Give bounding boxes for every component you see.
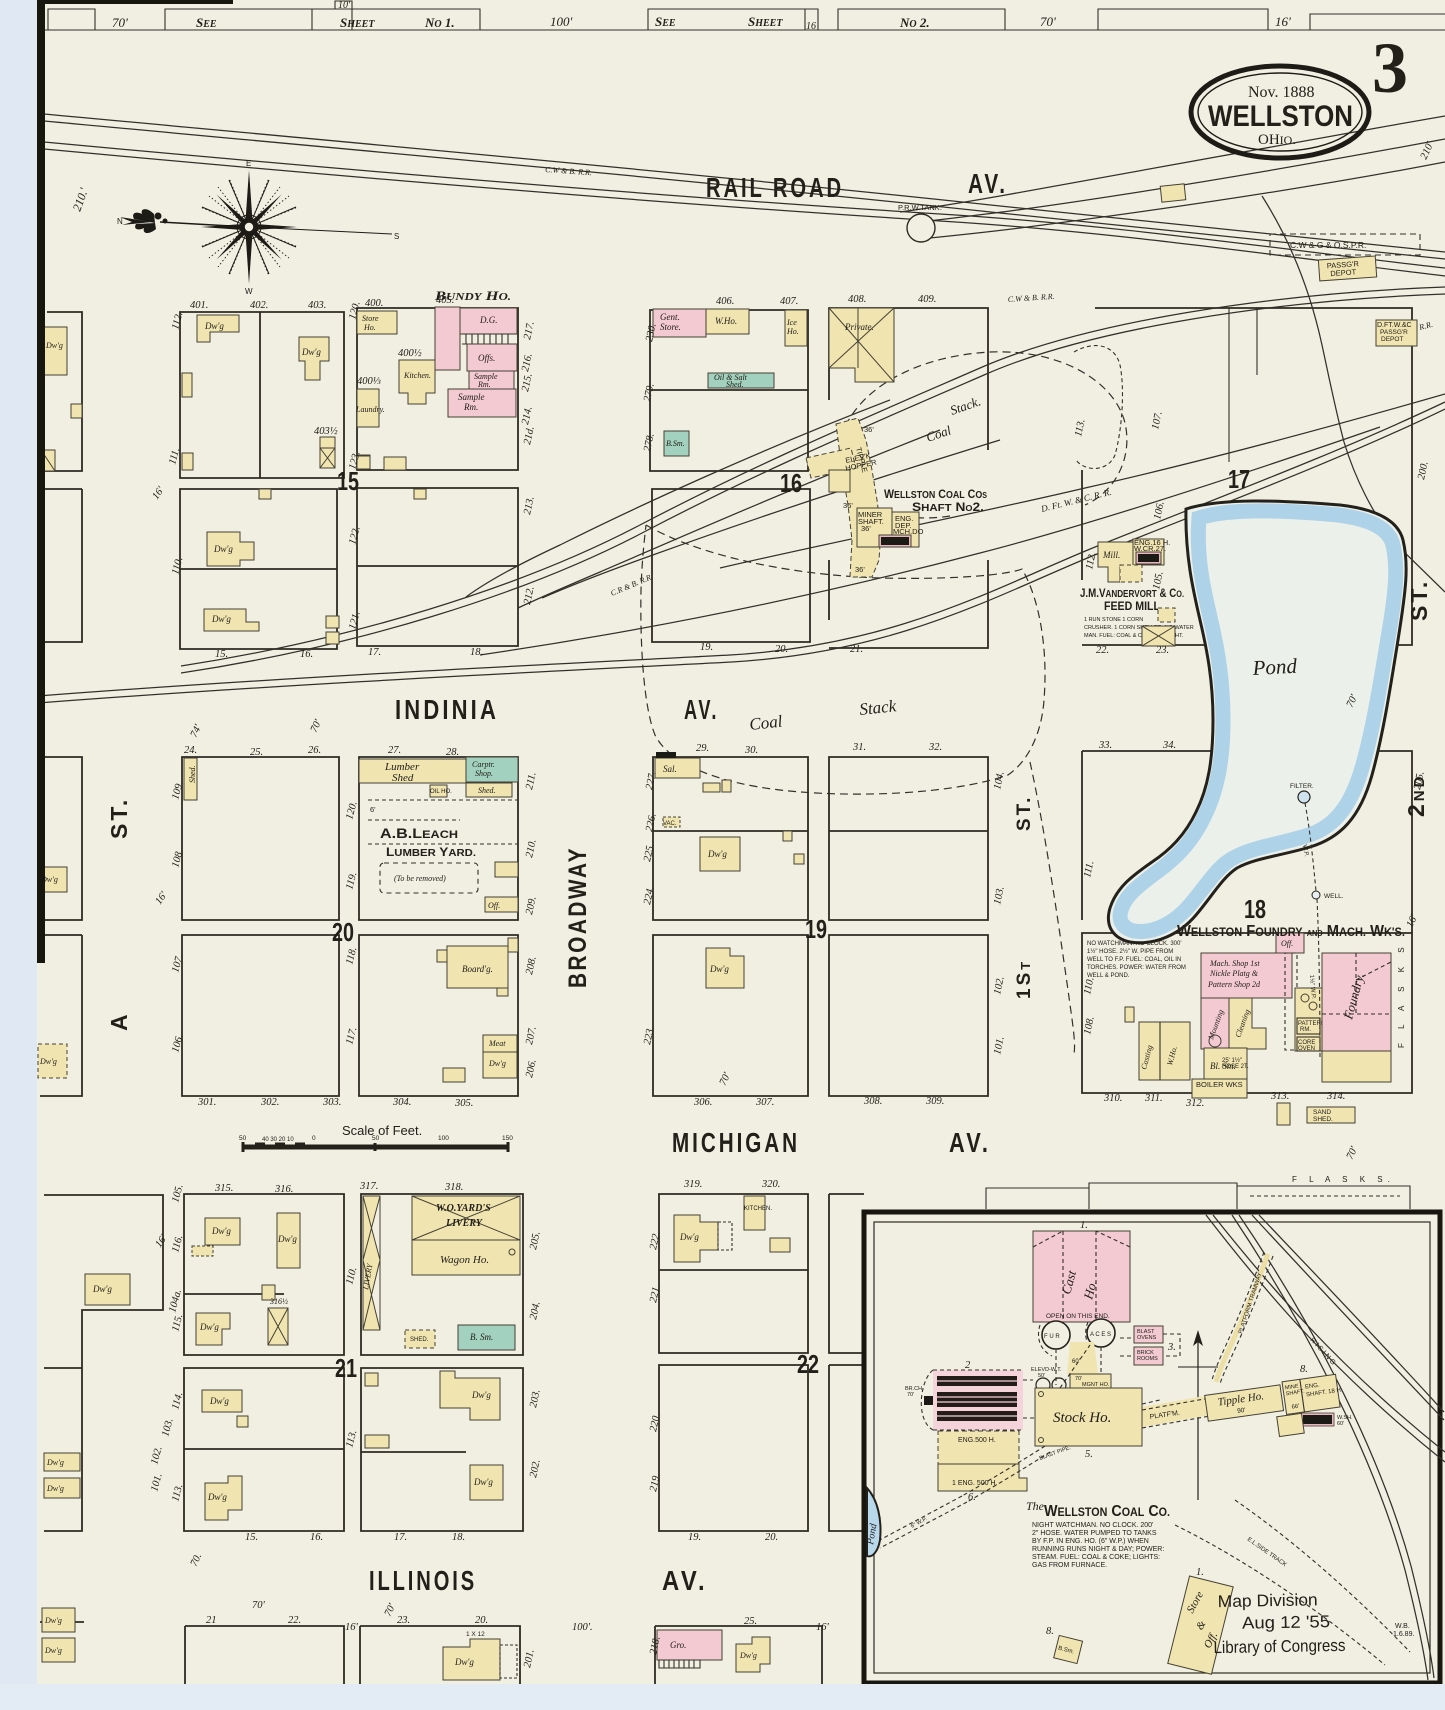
- svg-text:KITCHEN.: KITCHEN.: [744, 1206, 772, 1212]
- svg-text:LIVERY: LIVERY: [445, 1218, 483, 1229]
- svg-text:23.: 23.: [397, 1615, 410, 1626]
- svg-text:OVENS: OVENS: [1137, 1335, 1157, 1341]
- svg-text:36': 36': [864, 425, 874, 434]
- svg-text:16: 16: [806, 21, 816, 32]
- svg-text:36': 36': [855, 565, 865, 574]
- svg-text:70': 70': [112, 15, 128, 30]
- svg-text:308.: 308.: [863, 1096, 882, 1107]
- svg-text:AV.: AV.: [684, 694, 719, 725]
- svg-text:FEED MILL: FEED MILL: [1104, 599, 1160, 613]
- svg-text:17.: 17.: [394, 1532, 407, 1543]
- svg-text:25.: 25.: [744, 1616, 757, 1627]
- svg-text:33.: 33.: [1098, 740, 1112, 751]
- svg-text:D.G.: D.G.: [479, 315, 498, 325]
- svg-text:402.: 402.: [250, 300, 268, 311]
- svg-text:31.: 31.: [852, 742, 866, 753]
- svg-text:36': 36': [861, 524, 871, 533]
- svg-text:1ST: 1ST: [1014, 959, 1035, 999]
- svg-text:SHAFT NO2.: SHAFT NO2.: [912, 500, 984, 514]
- svg-text:1.: 1.: [1196, 1567, 1204, 1578]
- svg-text:60': 60': [1337, 1421, 1344, 1427]
- svg-text:(To be removed): (To be removed): [394, 874, 446, 883]
- svg-text:70': 70': [1040, 14, 1056, 29]
- svg-text:302.: 302.: [260, 1097, 279, 1108]
- svg-text:Dw'g: Dw'g: [199, 1322, 219, 1332]
- svg-text:16': 16': [816, 1622, 830, 1633]
- svg-text:16': 16': [1275, 14, 1291, 29]
- svg-text:Laundry.: Laundry.: [355, 405, 385, 414]
- svg-text:Shed: Shed: [392, 772, 414, 784]
- svg-text:Dw'g: Dw'g: [44, 1616, 62, 1625]
- svg-text:W.B.: W.B.: [1395, 1623, 1410, 1630]
- svg-text:N: N: [117, 217, 123, 226]
- svg-text:BY F.P. IN ENG. HO. (6" W.P.): BY F.P. IN ENG. HO. (6" W.P.) WHEN: [1032, 1538, 1149, 1545]
- svg-text:409.: 409.: [918, 294, 936, 305]
- svg-text:0: 0: [312, 1135, 316, 1142]
- svg-text:INDINIA: INDINIA: [395, 694, 499, 725]
- svg-text:Ho.: Ho.: [786, 327, 799, 336]
- svg-text:ST.: ST.: [1406, 579, 1432, 621]
- svg-text:HOSE 2T.: HOSE 2T.: [1222, 1064, 1249, 1070]
- svg-text:20.: 20.: [775, 644, 788, 655]
- svg-text:8.: 8.: [1046, 1626, 1054, 1637]
- svg-text:70': 70': [907, 1392, 914, 1398]
- svg-text:Aug 12 '55: Aug 12 '55: [1242, 1612, 1330, 1633]
- svg-text:314.: 314.: [1326, 1091, 1345, 1102]
- svg-text:22.: 22.: [1096, 645, 1109, 656]
- svg-text:W.CR.27.: W.CR.27.: [1134, 544, 1166, 553]
- svg-text:66': 66': [1291, 1404, 1300, 1411]
- svg-text:303.: 303.: [322, 1097, 341, 1108]
- svg-text:306.: 306.: [693, 1097, 712, 1108]
- svg-text:P.R.W.TANK.: P.R.W.TANK.: [898, 203, 942, 212]
- svg-text:28.: 28.: [446, 747, 459, 758]
- svg-text:40 30 20 10: 40 30 20 10: [262, 1137, 294, 1143]
- svg-text:Dw'g: Dw'g: [211, 1226, 231, 1236]
- svg-text:B.Sm.: B.Sm.: [666, 439, 685, 448]
- svg-text:Stock Ho.: Stock Ho.: [1053, 1410, 1111, 1426]
- svg-text:Store.: Store.: [660, 322, 681, 332]
- svg-text:ELEVD-W.T.: ELEVD-W.T.: [1031, 1367, 1062, 1373]
- svg-text:34.: 34.: [1162, 740, 1176, 751]
- svg-text:3.: 3.: [1167, 1342, 1176, 1353]
- svg-text:400⅓: 400⅓: [357, 376, 381, 387]
- svg-text:WELLSTON FOUNDRY AND MACH. WK': WELLSTON FOUNDRY AND MACH. WK'S.: [1177, 923, 1405, 940]
- svg-text:16': 16': [345, 1622, 359, 1633]
- svg-text:3: 3: [1372, 28, 1408, 108]
- svg-text:SAND: SAND: [1313, 1109, 1331, 1116]
- svg-text:Shed.: Shed.: [726, 380, 744, 389]
- svg-text:315.: 315.: [214, 1183, 233, 1194]
- svg-text:19: 19: [805, 914, 827, 944]
- svg-text:WELLSTON COAL COS: WELLSTON COAL COS: [884, 487, 988, 501]
- svg-text:316.: 316.: [274, 1184, 293, 1195]
- svg-text:Gent.: Gent.: [660, 312, 680, 322]
- svg-text:SHED.: SHED.: [410, 1337, 429, 1343]
- svg-text:Dw'g: Dw'g: [739, 1651, 757, 1660]
- svg-text:ENG.500 H.: ENG.500 H.: [958, 1437, 996, 1444]
- svg-text:MICHIGAN: MICHIGAN: [672, 1127, 800, 1158]
- svg-text:E: E: [246, 159, 251, 168]
- svg-text:SHED.: SHED.: [1313, 1116, 1333, 1123]
- svg-text:Store: Store: [362, 314, 379, 323]
- svg-text:90': 90': [1237, 1407, 1246, 1415]
- svg-text:310.: 310.: [1103, 1093, 1122, 1104]
- svg-text:MCH.DO: MCH.DO: [893, 527, 924, 536]
- svg-text:Dw'g: Dw'g: [471, 1390, 491, 1400]
- svg-text:Coal: Coal: [748, 712, 783, 734]
- svg-text:W.O.YARD'S: W.O.YARD'S: [436, 1203, 491, 1214]
- svg-text:AV.: AV.: [662, 1565, 708, 1596]
- svg-text:313.: 313.: [1270, 1091, 1289, 1102]
- svg-text:6': 6': [370, 805, 376, 814]
- svg-text:15.: 15.: [245, 1532, 258, 1543]
- svg-text:Dw'g: Dw'g: [488, 1059, 506, 1068]
- svg-text:22.: 22.: [288, 1615, 301, 1626]
- svg-text:Shed.: Shed.: [478, 786, 496, 795]
- svg-text:F U R: F U R: [1044, 1334, 1060, 1340]
- svg-text:401.: 401.: [190, 300, 208, 311]
- svg-text:21: 21: [335, 1353, 357, 1383]
- svg-text:Mach. Shop 1st: Mach. Shop 1st: [1209, 959, 1260, 968]
- svg-text:Ho.: Ho.: [363, 323, 376, 332]
- svg-text:403½: 403½: [314, 426, 338, 437]
- svg-text:Dw'g: Dw'g: [454, 1657, 474, 1667]
- svg-text:Dw'g: Dw'g: [92, 1284, 112, 1294]
- svg-text:W: W: [245, 287, 253, 296]
- svg-text:405.: 405.: [436, 295, 454, 306]
- svg-text:Sample: Sample: [458, 392, 485, 402]
- svg-text:Off.: Off.: [488, 901, 500, 910]
- svg-text:21.: 21.: [850, 644, 863, 655]
- svg-text:307.: 307.: [755, 1097, 774, 1108]
- svg-text:50: 50: [372, 1135, 380, 1142]
- svg-text:1 X 12: 1 X 12: [466, 1631, 485, 1638]
- svg-text:OHIO.: OHIO.: [1258, 132, 1296, 148]
- svg-text:22: 22: [797, 1349, 819, 1379]
- svg-text:Gro.: Gro.: [670, 1640, 686, 1650]
- svg-text:Sal.: Sal.: [663, 764, 677, 774]
- svg-text:1½" HOSE. 2½" W. PIPE FROM: 1½" HOSE. 2½" W. PIPE FROM: [1087, 948, 1173, 955]
- svg-text:Scale of Feet.: Scale of Feet.: [342, 1123, 422, 1138]
- svg-text:60': 60': [1072, 1359, 1080, 1365]
- svg-text:Dw'g: Dw'g: [39, 1057, 57, 1066]
- svg-text:25.: 25.: [250, 747, 263, 758]
- svg-text:AV.: AV.: [949, 1127, 991, 1158]
- svg-text:10': 10': [338, 0, 351, 11]
- svg-text:25' 1½": 25' 1½": [1222, 1057, 1242, 1064]
- svg-text:Ice: Ice: [786, 318, 797, 327]
- svg-text:C.W & G & O.S.P.R.: C.W & G & O.S.P.R.: [1290, 240, 1366, 250]
- svg-text:B. Sm.: B. Sm.: [470, 1332, 493, 1342]
- svg-text:Mill.: Mill.: [1102, 550, 1120, 560]
- svg-text:Kitchen.: Kitchen.: [403, 371, 431, 380]
- svg-text:MGNT HO.: MGNT HO.: [1082, 1382, 1110, 1388]
- svg-text:Dw'g: Dw'g: [44, 1646, 62, 1655]
- svg-text:S: S: [394, 232, 399, 241]
- svg-text:D.FT.W.&C: D.FT.W.&C: [1377, 322, 1412, 329]
- svg-text:Shed.: Shed.: [188, 765, 197, 783]
- svg-text:406.: 406.: [716, 296, 734, 307]
- svg-text:1 RUN STONE 1 CORN: 1 RUN STONE 1 CORN: [1084, 617, 1143, 623]
- svg-text:NIGHT WATCHMAN. NO CLOCK. 200': NIGHT WATCHMAN. NO CLOCK. 200': [1032, 1522, 1153, 1529]
- svg-text:400.: 400.: [365, 298, 383, 309]
- svg-text:Dw'g: Dw'g: [707, 849, 727, 859]
- svg-text:WELL.: WELL.: [1324, 893, 1344, 900]
- svg-text:Offs.: Offs.: [478, 353, 495, 363]
- svg-text:50: 50: [239, 1135, 247, 1142]
- svg-text:Nickle Platg &: Nickle Platg &: [1209, 969, 1259, 978]
- svg-text:319.: 319.: [683, 1179, 702, 1190]
- svg-text:1.: 1.: [1080, 1220, 1088, 1231]
- svg-text:Pattern Shop 2d: Pattern Shop 2d: [1207, 980, 1261, 989]
- svg-text:ROOMS: ROOMS: [1137, 1356, 1158, 1362]
- svg-text:408.: 408.: [848, 294, 866, 305]
- svg-text:Dw'g: Dw'g: [709, 964, 729, 974]
- svg-text:STEAM. FUEL: COAL & COKE; LIGH: STEAM. FUEL: COAL & COKE; LIGHTS:: [1032, 1554, 1160, 1561]
- svg-text:1 ENG. 500 H.: 1 ENG. 500 H.: [952, 1480, 998, 1487]
- svg-text:100': 100': [550, 14, 573, 29]
- svg-text:150: 150: [502, 1135, 513, 1142]
- svg-text:16: 16: [780, 468, 802, 498]
- svg-text:23.: 23.: [1156, 645, 1169, 656]
- svg-text:19.: 19.: [688, 1532, 701, 1543]
- svg-text:WELLSTON: WELLSTON: [1208, 100, 1353, 133]
- svg-text:Map Division: Map Division: [1218, 1590, 1318, 1611]
- svg-text:20.: 20.: [475, 1615, 488, 1626]
- svg-text:1.6.89.: 1.6.89.: [1393, 1631, 1414, 1638]
- svg-text:Shop.: Shop.: [475, 769, 493, 778]
- svg-text:403.: 403.: [308, 300, 326, 311]
- svg-text:FILTER.: FILTER.: [1290, 783, 1314, 790]
- svg-text:20: 20: [332, 917, 354, 947]
- svg-text:DEPOT: DEPOT: [1330, 267, 1357, 278]
- svg-text:W.Ho.: W.Ho.: [715, 316, 737, 326]
- svg-text:100: 100: [438, 1135, 449, 1142]
- svg-text:Private.: Private.: [844, 322, 874, 332]
- svg-text:Meat: Meat: [488, 1039, 506, 1048]
- svg-text:18.: 18.: [452, 1532, 465, 1543]
- svg-text:AV.: AV.: [968, 168, 1008, 199]
- svg-text:29.: 29.: [696, 743, 709, 754]
- svg-text:Rm.: Rm.: [463, 402, 478, 412]
- svg-text:Dw'g: Dw'g: [679, 1232, 699, 1242]
- svg-text:19.: 19.: [700, 642, 713, 653]
- svg-text:Dw'g: Dw'g: [46, 1484, 64, 1493]
- svg-text:18: 18: [1244, 894, 1266, 924]
- svg-text:ST.: ST.: [1014, 795, 1035, 831]
- svg-text:F L A S K S: F L A S K S: [1397, 941, 1406, 1048]
- svg-text:301.: 301.: [197, 1097, 216, 1108]
- svg-text:RUNNING RUNS NIGHT & DAY; POWE: RUNNING RUNS NIGHT & DAY; POWER:: [1032, 1546, 1164, 1553]
- svg-text:407.: 407.: [780, 296, 798, 307]
- svg-text:Dw'g: Dw'g: [211, 614, 231, 624]
- svg-text:Off.: Off.: [1281, 939, 1293, 948]
- svg-text:100'.: 100'.: [572, 1622, 593, 1633]
- svg-text:Library of Congress: Library of Congress: [1213, 1636, 1345, 1657]
- svg-text:TORCHES. POWER: WATER FROM: TORCHES. POWER: WATER FROM: [1087, 965, 1186, 971]
- svg-text:RAIL ROAD: RAIL ROAD: [706, 172, 844, 203]
- svg-text:2" HOSE. WATER PUMPED TO TANKS: 2" HOSE. WATER PUMPED TO TANKS: [1032, 1530, 1157, 1537]
- svg-text:BOILER WKS: BOILER WKS: [1196, 1080, 1243, 1089]
- svg-text:320.: 320.: [761, 1179, 780, 1190]
- svg-text:A C E S: A C E S: [1090, 1332, 1111, 1338]
- svg-text:DEPOT: DEPOT: [1381, 336, 1403, 343]
- svg-text:The: The: [1026, 1499, 1045, 1513]
- svg-text:Dw'g: Dw'g: [204, 321, 224, 331]
- svg-text:LUMBER YARD.: LUMBER YARD.: [386, 845, 476, 859]
- svg-text:15.: 15.: [215, 649, 228, 660]
- svg-text:400½: 400½: [398, 348, 422, 359]
- svg-text:30.: 30.: [744, 745, 758, 756]
- svg-text:Dw'g: Dw'g: [473, 1477, 493, 1487]
- svg-text:WELLSTON COAL CO.: WELLSTON COAL CO.: [1044, 1503, 1170, 1520]
- svg-text:309.: 309.: [925, 1096, 944, 1107]
- svg-text:J.M.VANDERVORT & CO.: J.M.VANDERVORT & CO.: [1080, 586, 1184, 600]
- svg-text:18.: 18.: [470, 647, 483, 658]
- svg-text:Pond: Pond: [1251, 654, 1298, 680]
- svg-text:Dw'g: Dw'g: [277, 1234, 297, 1244]
- svg-text:16.: 16.: [300, 649, 313, 660]
- svg-text:Board'g.: Board'g.: [462, 964, 493, 974]
- svg-text:RM.: RM.: [1300, 1027, 1311, 1033]
- svg-text:Dw'g: Dw'g: [45, 341, 63, 350]
- svg-text:305.: 305.: [454, 1098, 473, 1109]
- svg-text:26.: 26.: [308, 745, 321, 756]
- svg-text:VAC.: VAC.: [663, 821, 677, 827]
- svg-text:WELL TO F.P. FUEL: COAL, OIL I: WELL TO F.P. FUEL: COAL, OIL IN: [1087, 957, 1181, 963]
- svg-text:PASSG'R: PASSG'R: [1380, 329, 1408, 336]
- svg-text:5.: 5.: [1085, 1449, 1093, 1460]
- svg-text:BROADWAY: BROADWAY: [564, 846, 592, 988]
- svg-text:ST.: ST.: [106, 797, 132, 839]
- svg-text:Dw'g: Dw'g: [207, 1492, 227, 1502]
- svg-text:OIL HO.: OIL HO.: [430, 789, 452, 795]
- svg-text:317.: 317.: [359, 1181, 378, 1192]
- svg-text:Dw'g: Dw'g: [46, 1458, 64, 1467]
- svg-text:OVEN: OVEN: [1298, 1046, 1315, 1052]
- svg-text:Wagon Ho.: Wagon Ho.: [440, 1254, 489, 1266]
- svg-text:ILLINOIS: ILLINOIS: [369, 1565, 477, 1596]
- svg-text:70': 70': [252, 1600, 266, 1611]
- svg-text:318.: 318.: [444, 1182, 463, 1193]
- svg-text:311.: 311.: [1144, 1093, 1163, 1104]
- svg-text:Dw'g: Dw'g: [213, 544, 233, 554]
- svg-text:304.: 304.: [392, 1097, 411, 1108]
- svg-text:CRUSHER. 1 CORN SHELLER. NO WA: CRUSHER. 1 CORN SHELLER. NO WATER: [1084, 625, 1194, 631]
- svg-text:316½: 316½: [269, 1297, 288, 1306]
- svg-text:17: 17: [1228, 464, 1250, 494]
- svg-text:Carptr.: Carptr.: [472, 760, 495, 769]
- svg-text:36': 36': [843, 501, 853, 510]
- svg-text:8.: 8.: [1300, 1364, 1308, 1375]
- svg-text:20.: 20.: [765, 1532, 778, 1543]
- svg-text:24.: 24.: [184, 745, 197, 756]
- svg-text:Stack: Stack: [858, 696, 897, 719]
- svg-text:32.: 32.: [928, 742, 942, 753]
- svg-text:A: A: [106, 1011, 132, 1031]
- svg-text:Rm.: Rm.: [477, 380, 491, 389]
- svg-text:17.: 17.: [368, 647, 381, 658]
- svg-text:27.: 27.: [388, 745, 401, 756]
- svg-text:16.: 16.: [310, 1532, 323, 1543]
- svg-text:GAS FROM FURNACE.: GAS FROM FURNACE.: [1032, 1562, 1107, 1569]
- svg-text:2: 2: [965, 1360, 971, 1371]
- svg-text:21: 21: [206, 1615, 217, 1626]
- svg-text:F L A S K S.: F L A S K S.: [1292, 1175, 1395, 1184]
- svg-text:Dw'g: Dw'g: [301, 347, 321, 357]
- svg-text:Dw'g: Dw'g: [209, 1396, 229, 1406]
- svg-text:312.: 312.: [1185, 1098, 1204, 1109]
- svg-text:Nov. 1888: Nov. 1888: [1248, 84, 1315, 101]
